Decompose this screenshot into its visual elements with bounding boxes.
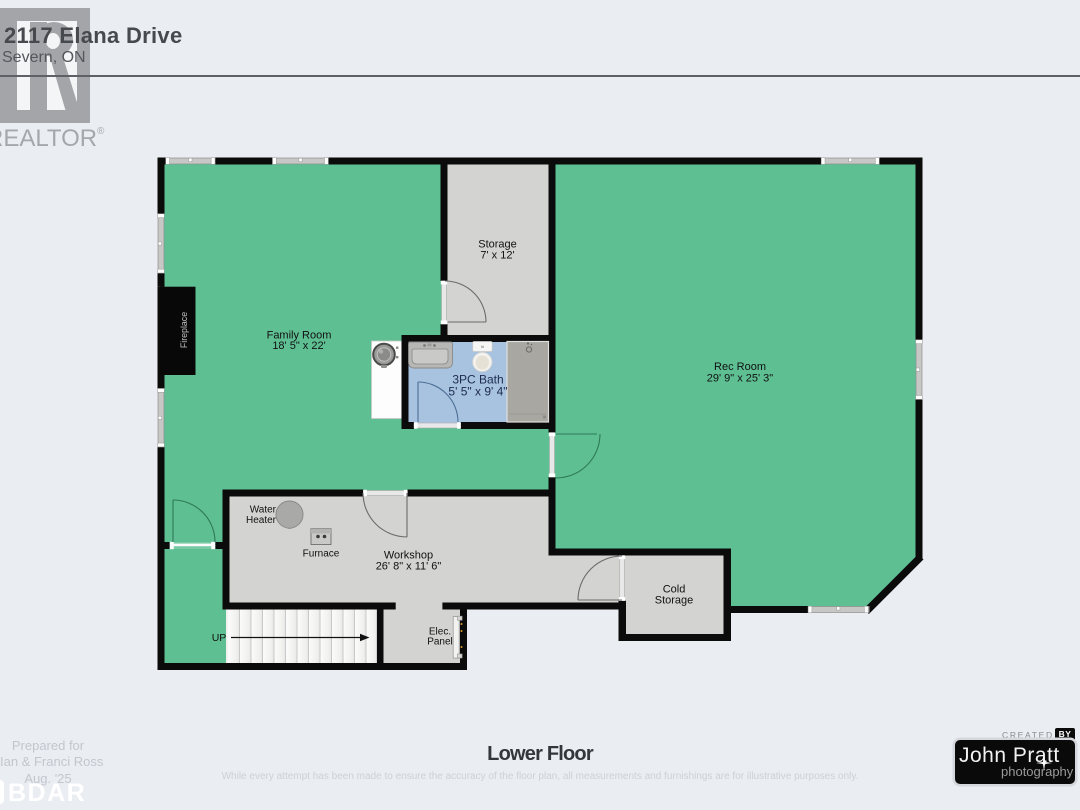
svg-text:Panel: Panel	[427, 637, 453, 648]
svg-text:UP: UP	[212, 632, 227, 644]
svg-text:26' 8" x 11' 6": 26' 8" x 11' 6"	[376, 560, 442, 572]
svg-text:Furnace: Furnace	[303, 549, 340, 560]
svg-text:Fireplace: Fireplace	[179, 312, 189, 348]
svg-text:Heater: Heater	[246, 515, 277, 526]
svg-text:Storage: Storage	[655, 595, 694, 607]
svg-text:18' 5" x 22': 18' 5" x 22'	[272, 340, 325, 352]
svg-text:29' 9" x 25' 3": 29' 9" x 25' 3"	[707, 373, 774, 385]
svg-text:Rec Room: Rec Room	[714, 361, 766, 373]
svg-text:7' x 12': 7' x 12'	[480, 250, 514, 262]
svg-text:Water: Water	[250, 505, 277, 516]
svg-text:5' 5" x 9' 4": 5' 5" x 9' 4"	[448, 385, 507, 399]
